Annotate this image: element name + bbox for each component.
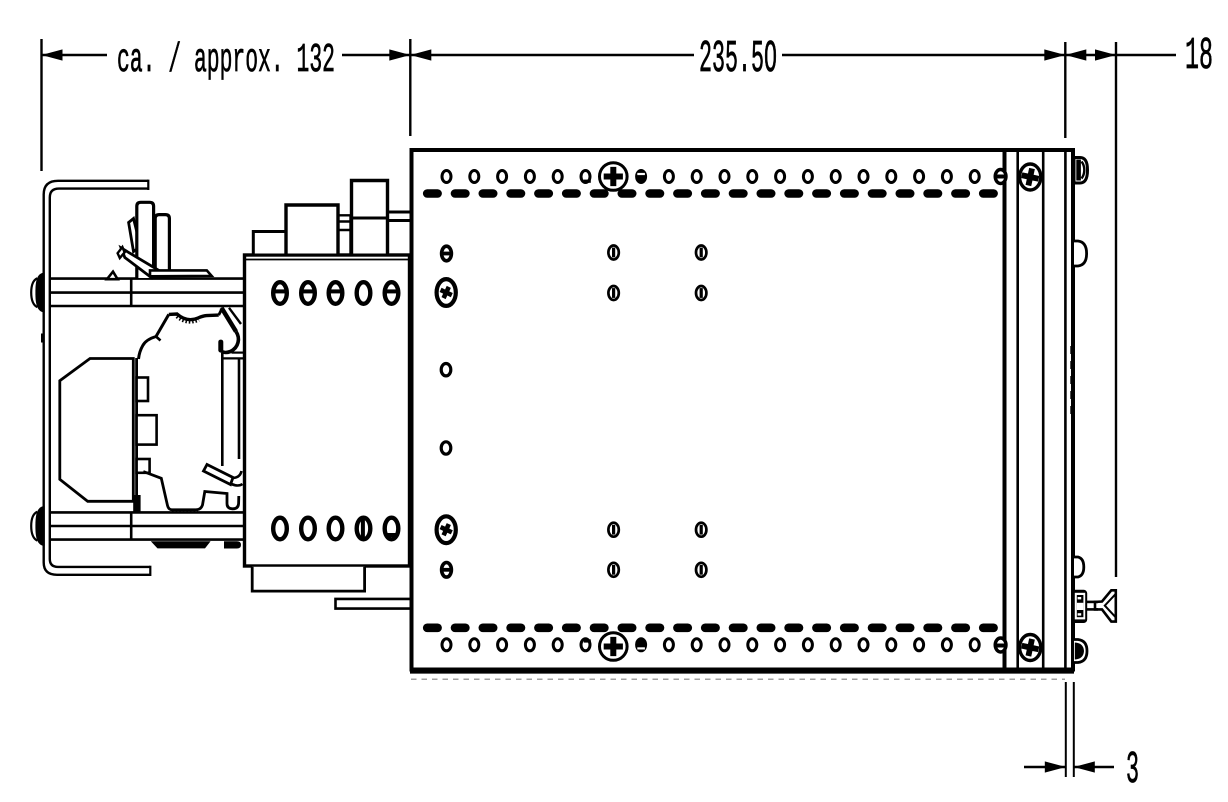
svg-text:3: 3 [1126,745,1139,796]
svg-text:235.5O: 235.5O [699,34,777,85]
svg-text:18: 18 [1185,31,1213,82]
svg-text:ca. / approx. 132: ca. / approx. 132 [117,38,335,84]
